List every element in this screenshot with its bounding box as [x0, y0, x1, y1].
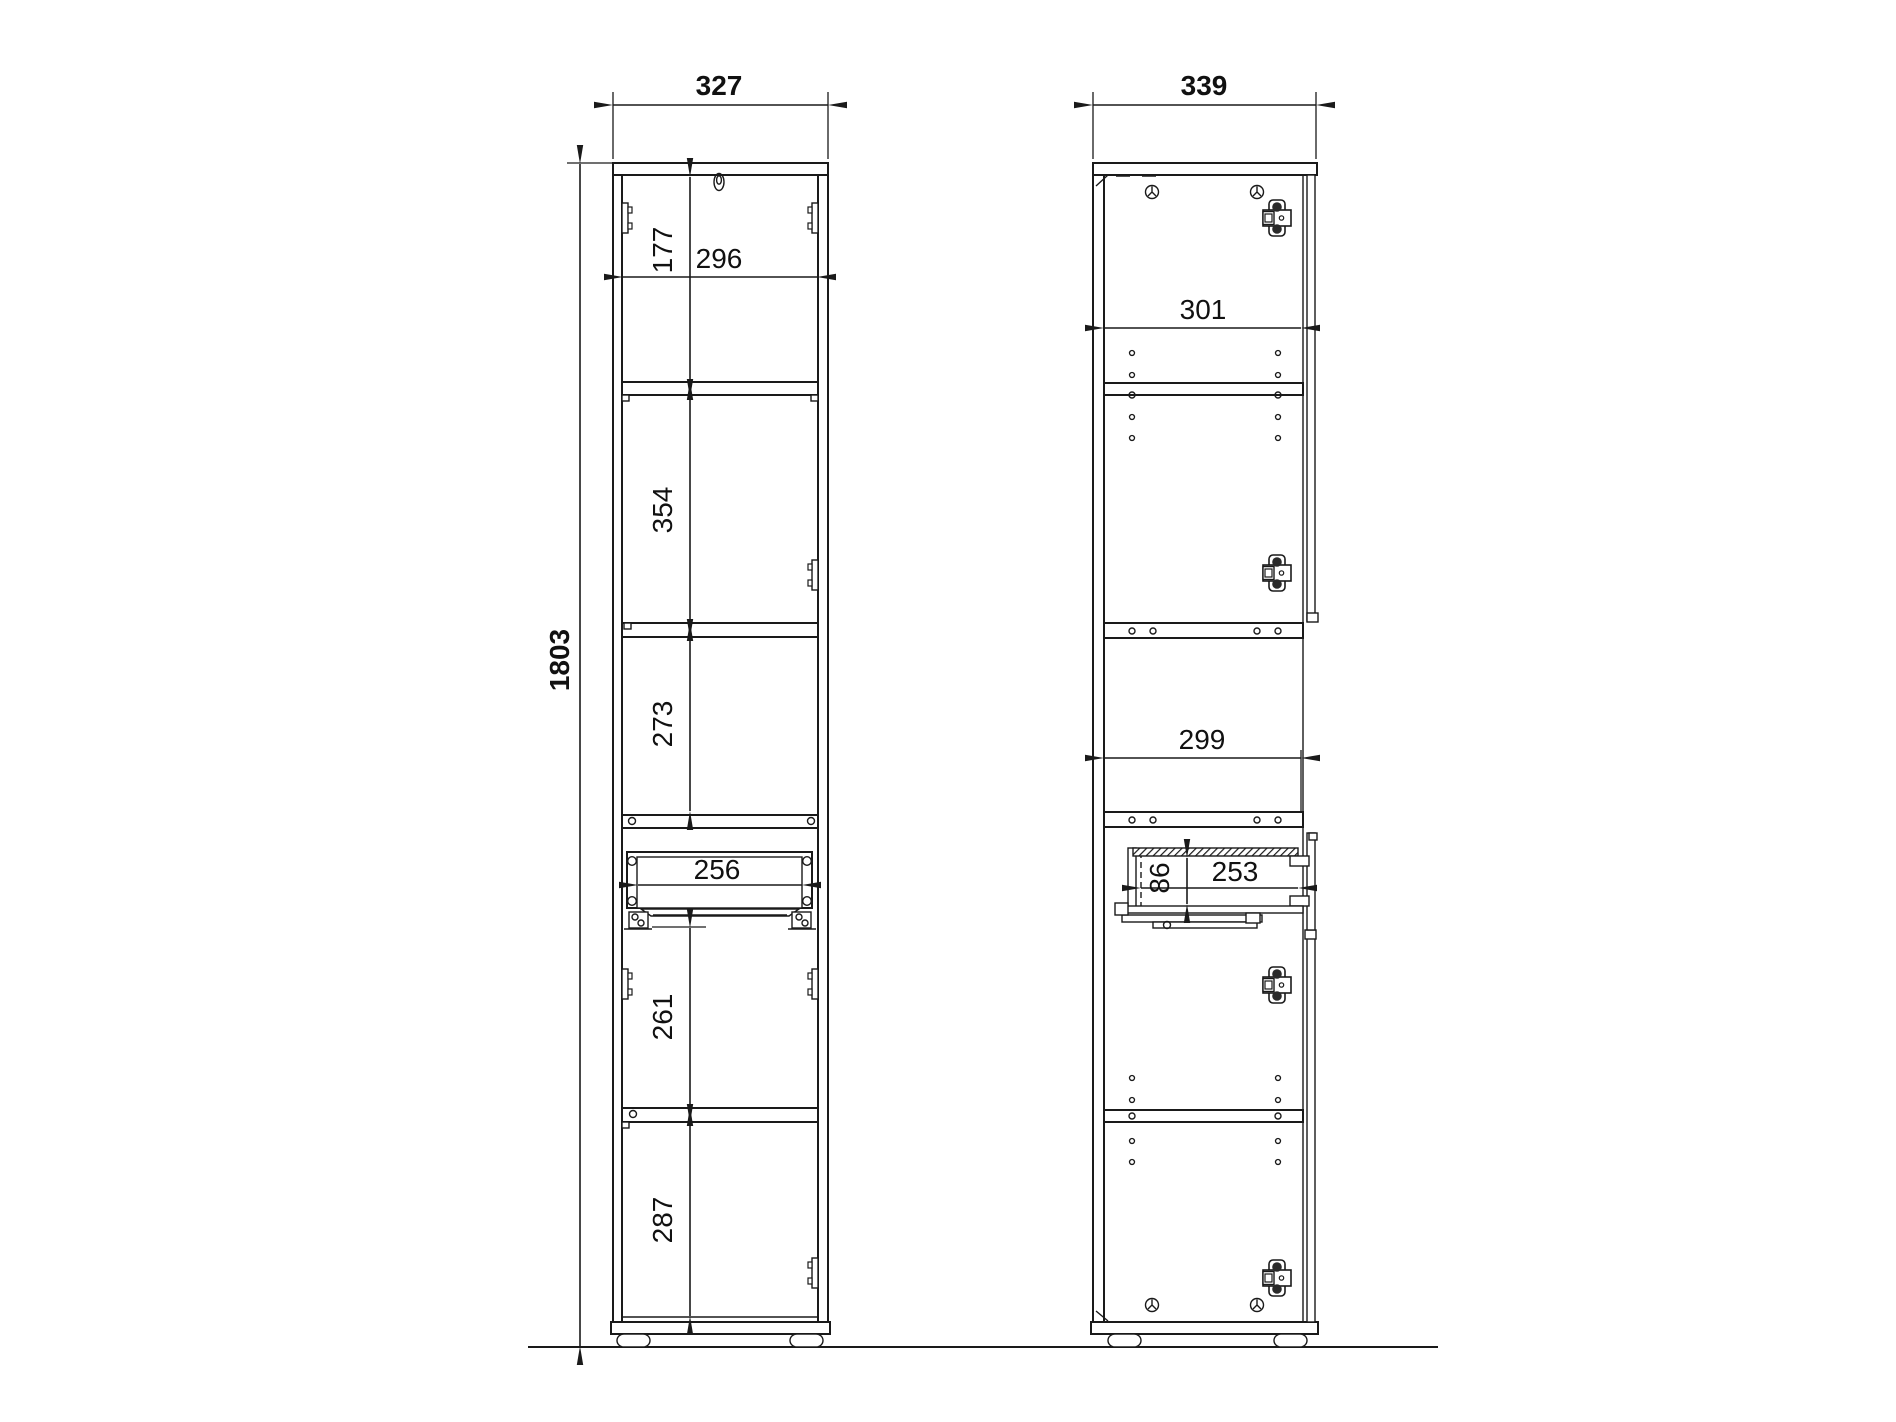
front-shelf-2: [622, 623, 818, 637]
dim-front-inner-width-label: 296: [696, 243, 743, 274]
drawer-runner-right: [788, 912, 816, 929]
dim-front-bottom-section-label: 287: [647, 1197, 678, 1244]
front-shelf-1: [622, 382, 818, 395]
dim-side-inner-middle: 299: [1104, 724, 1301, 812]
dim-front-top-section: 177: [647, 177, 690, 381]
hinge-mark: [808, 203, 818, 233]
shelf-peg: [624, 623, 631, 629]
front-shelf-3: [622, 815, 818, 828]
dim-front-width-label: 327: [696, 70, 743, 101]
front-cabinet-body: [611, 163, 830, 1347]
drawer-front-pin: [1290, 896, 1309, 906]
dim-side-inner-top-label: 301: [1180, 294, 1227, 325]
side-view: 339 301 299 253 86: [1091, 70, 1318, 1347]
screw-icon: [1146, 186, 1159, 199]
dim-side-inner-top: 301: [1104, 294, 1301, 328]
hinge-mark: [622, 203, 632, 233]
side-doors: [1305, 175, 1318, 1322]
front-left-foot: [617, 1334, 650, 1347]
dim-front-top-section-label: 177: [647, 227, 678, 274]
dim-front-section-2: 354: [647, 398, 690, 622]
hinge-icon: [1263, 555, 1291, 591]
dim-total-height: 1803: [544, 163, 616, 1346]
dim-side-drawer-height-label: 86: [1144, 862, 1175, 893]
drawer-back: [1128, 848, 1136, 908]
lower-door-edge: [1307, 930, 1315, 1322]
front-shelf-4: [622, 1108, 818, 1122]
shelf-peg: [811, 395, 818, 401]
front-view: 327 1803 296 177 354 273 256: [544, 70, 830, 1347]
hinge-plates: [1263, 200, 1291, 1296]
dim-front-section-2-label: 354: [647, 487, 678, 534]
door-bracket: [1307, 613, 1318, 622]
drawer-front-edge: [1307, 833, 1315, 930]
hinge-mark: [808, 560, 818, 590]
drawer-front-pin: [1290, 856, 1309, 866]
dim-front-drawer-width-label: 256: [694, 854, 741, 885]
hinge-mark: [808, 969, 818, 999]
dim-side-width-label: 339: [1181, 70, 1228, 101]
hinge-icon: [1263, 200, 1291, 236]
drawer-runner-left: [624, 912, 652, 929]
dim-side-drawer-height: 86: [1144, 858, 1187, 904]
dim-total-height-label: 1803: [544, 629, 575, 691]
hinge-icon: [1263, 1260, 1291, 1296]
dim-side-inner-middle-label: 299: [1179, 724, 1226, 755]
shelf-peg: [622, 1122, 629, 1128]
dim-front-section-3-label: 273: [647, 701, 678, 748]
side-shelf-4: [1104, 1110, 1303, 1122]
screw-icon: [1146, 1299, 1159, 1312]
cabinet-technical-drawing: 327 1803 296 177 354 273 256: [0, 0, 1896, 1422]
dim-side-width: 339: [1093, 70, 1316, 159]
dim-front-width: 327: [613, 70, 828, 159]
technical-drawing-page: 327 1803 296 177 354 273 256: [0, 0, 1896, 1422]
hinge-mark: [622, 969, 632, 999]
side-cabinet-body: [1091, 163, 1318, 1347]
hinge-mark: [808, 1258, 818, 1288]
drawer-top-edge: [1133, 848, 1298, 856]
dim-front-section-3: 273: [647, 638, 690, 811]
side-shelf-3: [1104, 812, 1303, 827]
side-shelf-2: [1104, 623, 1303, 638]
upper-door-edge: [1307, 175, 1315, 621]
side-right-foot: [1274, 1334, 1307, 1347]
dim-front-bottom-section: 287: [647, 1123, 690, 1316]
hinge-icon: [1263, 967, 1291, 1003]
dim-side-drawer-depth-label: 253: [1212, 856, 1259, 887]
dim-front-section-4-label: 261: [647, 994, 678, 1041]
door-bracket: [1305, 930, 1316, 939]
drawer-slide: [1115, 903, 1303, 929]
wall-mount-keyhole: [714, 174, 724, 191]
side-left-foot: [1108, 1334, 1141, 1347]
screw-icon: [1251, 1299, 1264, 1312]
front-right-foot: [790, 1334, 823, 1347]
shelf-peg: [622, 395, 629, 401]
screw-icon: [1251, 186, 1264, 199]
dim-front-section-4: 261: [647, 927, 706, 1107]
